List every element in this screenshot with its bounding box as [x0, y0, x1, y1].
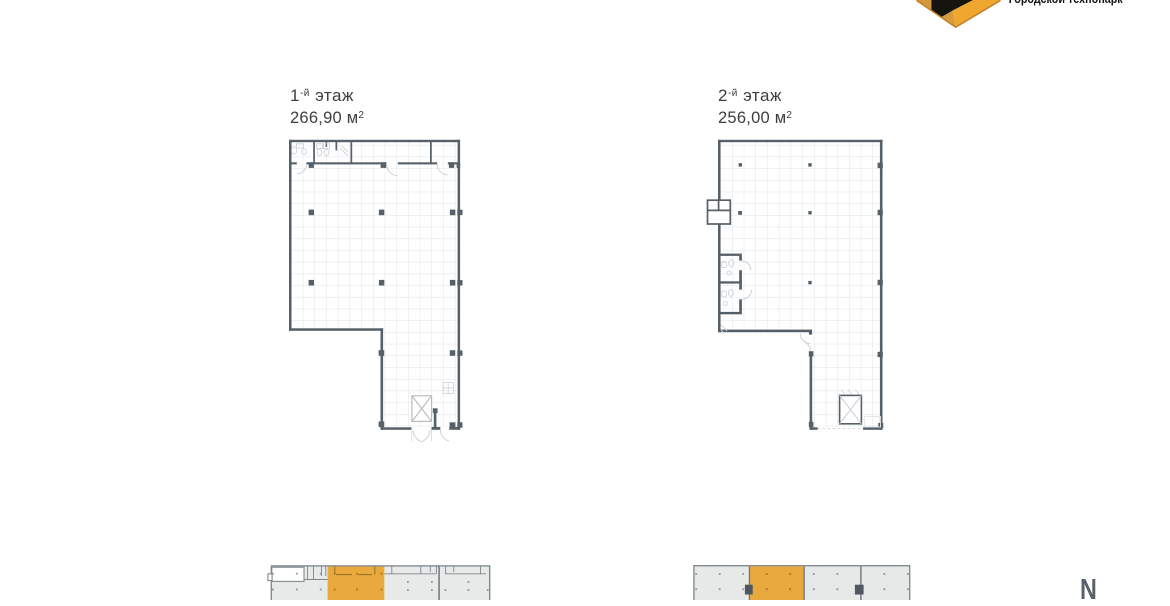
svg-text:Городской технопарк: Городской технопарк — [1009, 0, 1124, 6]
